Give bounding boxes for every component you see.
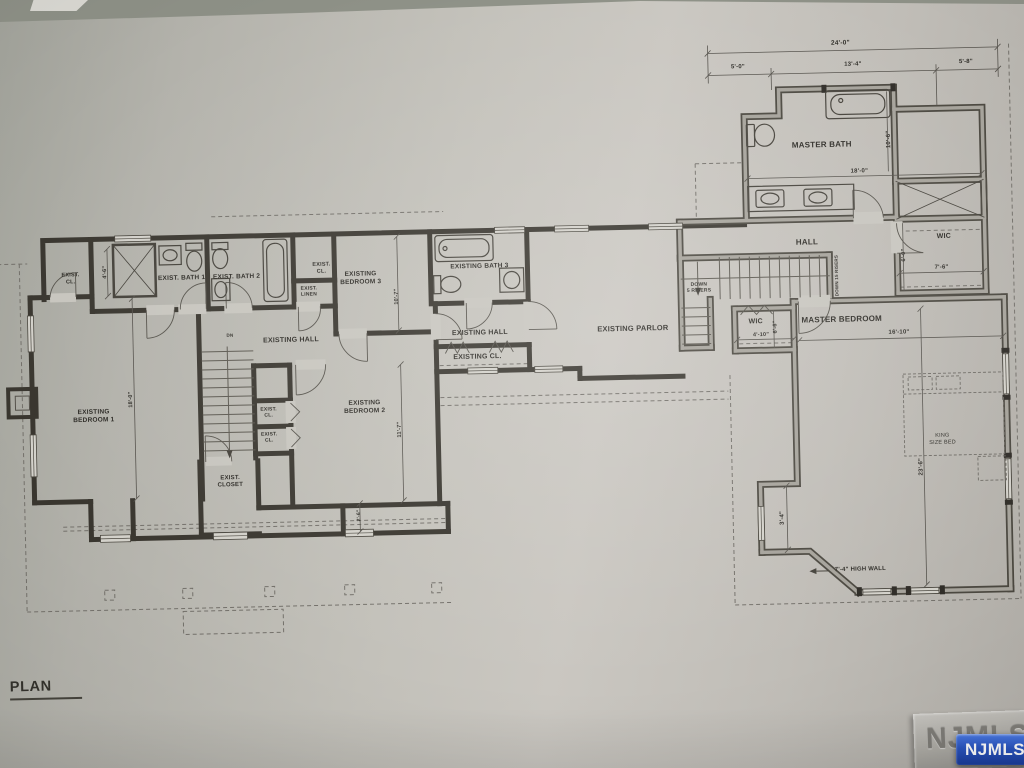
dim-master-width: 16'-10" xyxy=(888,329,909,337)
floor-plan-drawing: MASTER BATH HALL WIC WIC MASTER BEDROOM … xyxy=(0,0,1024,768)
toilet-icon-master xyxy=(746,124,774,147)
note-down-15-risers: DOWN 15 RISERS xyxy=(834,255,840,296)
room-label-exist-cl-mid: EXIST. CL. xyxy=(312,261,330,275)
room-label-exist-cl-a: EXIST. CL. xyxy=(260,406,277,418)
toilet-icon-bath1 xyxy=(186,243,203,271)
dim-master-depth: 23'-6" xyxy=(918,458,926,476)
sheet-title: PLAN xyxy=(10,678,82,701)
dim-bath-width: 18'-0" xyxy=(851,168,869,176)
njmls-badge-text: NJMLS xyxy=(965,740,1024,760)
plan-linework xyxy=(0,0,1024,768)
dim-bedroom2-depth: 11'-7" xyxy=(397,422,404,438)
room-label-existing-bath-3: EXISTING BATH 3 xyxy=(450,262,508,271)
sink-icon-bath2 xyxy=(212,278,230,300)
dim-wic-left-depth: 6'-6" xyxy=(772,320,779,333)
existing-walls xyxy=(29,225,752,541)
room-label-exist-bath-1: EXIST. BATH 1 xyxy=(158,274,205,283)
furniture-label-king-bed: KING SIZE BED xyxy=(929,432,956,446)
shower-icon-bath1 xyxy=(113,244,156,297)
note-dn: DN xyxy=(226,333,233,339)
room-label-exist-linen: EXIST. LINEN xyxy=(301,285,318,297)
room-label-existing-hall-upper: EXISTING HALL xyxy=(263,336,319,346)
dim-bedroom3-depth: 10'-7" xyxy=(394,288,401,304)
dim-segment-left: 5'-0" xyxy=(731,64,745,72)
room-label-existing-cl: EXISTING CL. xyxy=(453,353,501,362)
dim-cl-nw: 4'-6" xyxy=(102,266,109,279)
dim-wic-right-depth: 6'-0" xyxy=(901,249,908,262)
new-walls xyxy=(677,85,1011,596)
dim-segment-right: 5'-8" xyxy=(959,59,973,67)
room-label-hall: HALL xyxy=(796,237,818,247)
dim-wic-right-width: 7'-6" xyxy=(935,264,949,272)
dim-bay: 2'-6" xyxy=(356,510,362,522)
room-label-existing-parlor: EXISTING PARLOR xyxy=(597,323,668,334)
toilet-icon-bath3 xyxy=(434,275,461,294)
floor-plan-photo: MASTER BATH HALL WIC WIC MASTER BEDROOM … xyxy=(0,0,1024,768)
shower-icon-master xyxy=(896,179,985,219)
dim-wic-left-width: 4'-10" xyxy=(753,332,769,339)
nightstand xyxy=(978,456,1007,481)
door-openings xyxy=(48,211,907,469)
room-label-master-bath: MASTER BATH xyxy=(792,139,852,150)
room-label-exist-bath-2: EXIST. BATH 2 xyxy=(213,273,260,282)
dim-overall-width: 24'-0" xyxy=(831,39,850,47)
room-label-existing-bedroom-1: EXISTING BEDROOM 1 xyxy=(73,408,115,425)
bathtub-icon-bath3 xyxy=(435,234,494,261)
njmls-watermark-badge: NJMLS xyxy=(956,734,1024,765)
sink-icon-bath3 xyxy=(499,268,524,293)
room-label-existing-bedroom-3: EXISTING BEDROOM 3 xyxy=(340,270,382,287)
dim-wall-jog: 3'-4" xyxy=(779,511,787,525)
toilet-icon-bath2 xyxy=(212,242,229,268)
bathtub-icon-bath2 xyxy=(263,239,288,302)
room-label-master-bedroom: MASTER BEDROOM xyxy=(801,314,882,325)
room-label-exist-closet: EXIST. CLOSET xyxy=(217,475,243,490)
room-label-exist-cl-b: EXIST. CL. xyxy=(261,431,278,443)
note-down-5-risers: DOWN 5 RISERS xyxy=(687,281,712,294)
room-label-wic-left: WIC xyxy=(749,318,763,327)
room-label-exist-cl-nw: EXIST. CL. xyxy=(61,272,79,286)
dashed-lines xyxy=(0,44,1021,639)
dim-bath-depth: 10'-6" xyxy=(886,131,894,149)
vanity-sinks-master xyxy=(748,184,855,211)
stair-arrows xyxy=(223,285,816,587)
sink-icon-bath1 xyxy=(159,245,181,264)
dim-segment-mid: 13'-4" xyxy=(844,61,862,69)
dim-bedroom1-depth: 18'-0" xyxy=(128,392,135,408)
bathtub-icon-master xyxy=(826,89,891,118)
room-label-existing-hall-lower: EXISTING HALL xyxy=(452,329,508,339)
note-high-wall: 7'-4" HIGH WALL xyxy=(835,566,886,574)
windows xyxy=(23,81,1015,615)
room-label-existing-bedroom-2: EXISTING BEDROOM 2 xyxy=(344,399,386,416)
room-label-wic-right: WIC xyxy=(937,233,951,242)
